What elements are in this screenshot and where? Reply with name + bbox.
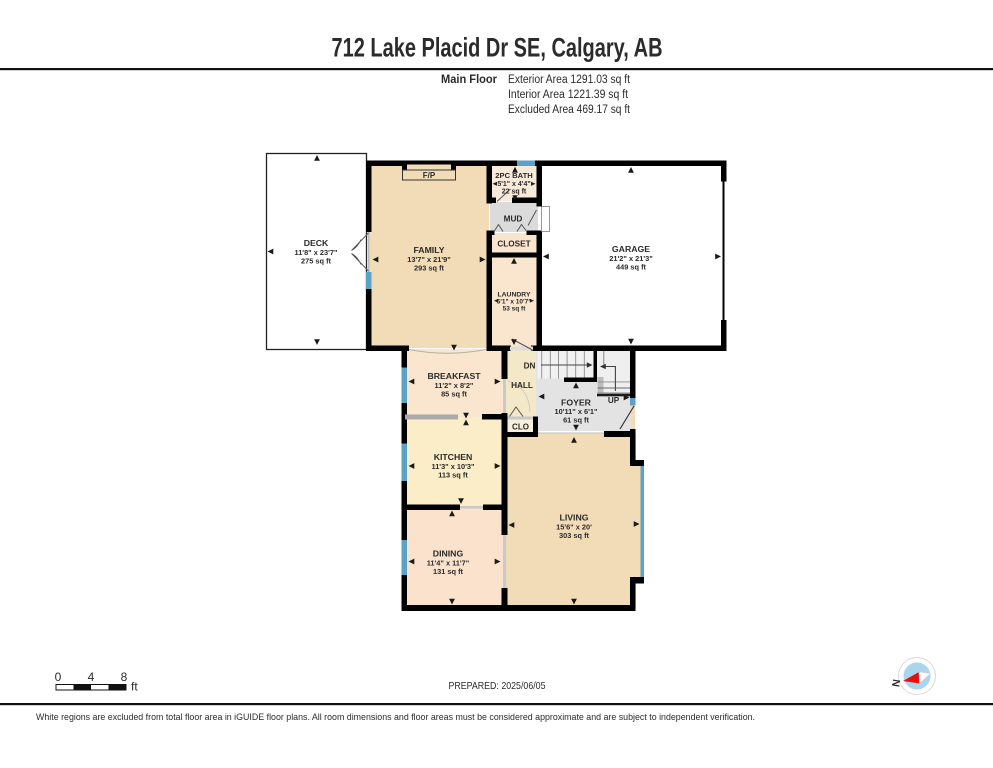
svg-text:DINING: DINING xyxy=(433,549,464,559)
svg-text:KITCHEN: KITCHEN xyxy=(434,452,473,462)
svg-text:UP: UP xyxy=(608,396,620,405)
svg-text:Interior Area 1221.39 sq ft: Interior Area 1221.39 sq ft xyxy=(508,89,629,101)
svg-text:GARAGE: GARAGE xyxy=(612,244,650,254)
svg-text:293 sq ft: 293 sq ft xyxy=(414,264,445,273)
svg-text:0: 0 xyxy=(55,670,62,684)
svg-text:FOYER: FOYER xyxy=(561,398,592,408)
svg-text:LAUNDRY: LAUNDRY xyxy=(498,292,531,299)
svg-text:4: 4 xyxy=(88,670,95,684)
svg-text:Main Floor: Main Floor xyxy=(441,74,497,86)
svg-text:CLOSET: CLOSET xyxy=(497,240,530,249)
svg-text:61 sq ft: 61 sq ft xyxy=(563,416,589,425)
svg-text:MUD: MUD xyxy=(504,215,523,224)
svg-text:449 sq ft: 449 sq ft xyxy=(616,263,647,272)
svg-text:PREPARED: 2025/06/05: PREPARED: 2025/06/05 xyxy=(449,680,546,692)
svg-text:5'1" x 4'4": 5'1" x 4'4" xyxy=(497,181,530,188)
svg-text:FAMILY: FAMILY xyxy=(413,245,444,255)
svg-text:HALL: HALL xyxy=(511,381,533,390)
svg-text:Exterior Area 1291.03 sq ft: Exterior Area 1291.03 sq ft xyxy=(508,74,631,86)
svg-text:DECK: DECK xyxy=(304,238,329,248)
svg-text:22 sq ft: 22 sq ft xyxy=(502,189,527,196)
svg-text:F/P: F/P xyxy=(423,171,436,180)
svg-text:5'1" x 10'7": 5'1" x 10'7" xyxy=(497,299,532,306)
svg-text:303 sq ft: 303 sq ft xyxy=(559,531,590,540)
svg-text:113 sq ft: 113 sq ft xyxy=(438,471,468,480)
svg-text:CLO: CLO xyxy=(512,423,529,432)
svg-text:85 sq ft: 85 sq ft xyxy=(441,390,467,399)
svg-text:275 sq ft: 275 sq ft xyxy=(301,257,332,266)
svg-text:DN: DN xyxy=(524,362,536,371)
svg-text:LIVING: LIVING xyxy=(560,513,589,523)
svg-text:Excluded Area 469.17 sq ft: Excluded Area 469.17 sq ft xyxy=(508,104,631,116)
svg-text:712 Lake Placid Dr SE, Calgary: 712 Lake Placid Dr SE, Calgary, AB xyxy=(332,33,663,63)
svg-text:8: 8 xyxy=(121,670,128,684)
svg-text:131 sq ft: 131 sq ft xyxy=(433,567,464,576)
svg-text:BREAKFAST: BREAKFAST xyxy=(427,371,481,381)
svg-text:White regions are excluded fro: White regions are excluded from total fl… xyxy=(36,712,755,722)
svg-text:ft: ft xyxy=(131,680,138,694)
svg-text:53 sq ft: 53 sq ft xyxy=(503,306,527,313)
